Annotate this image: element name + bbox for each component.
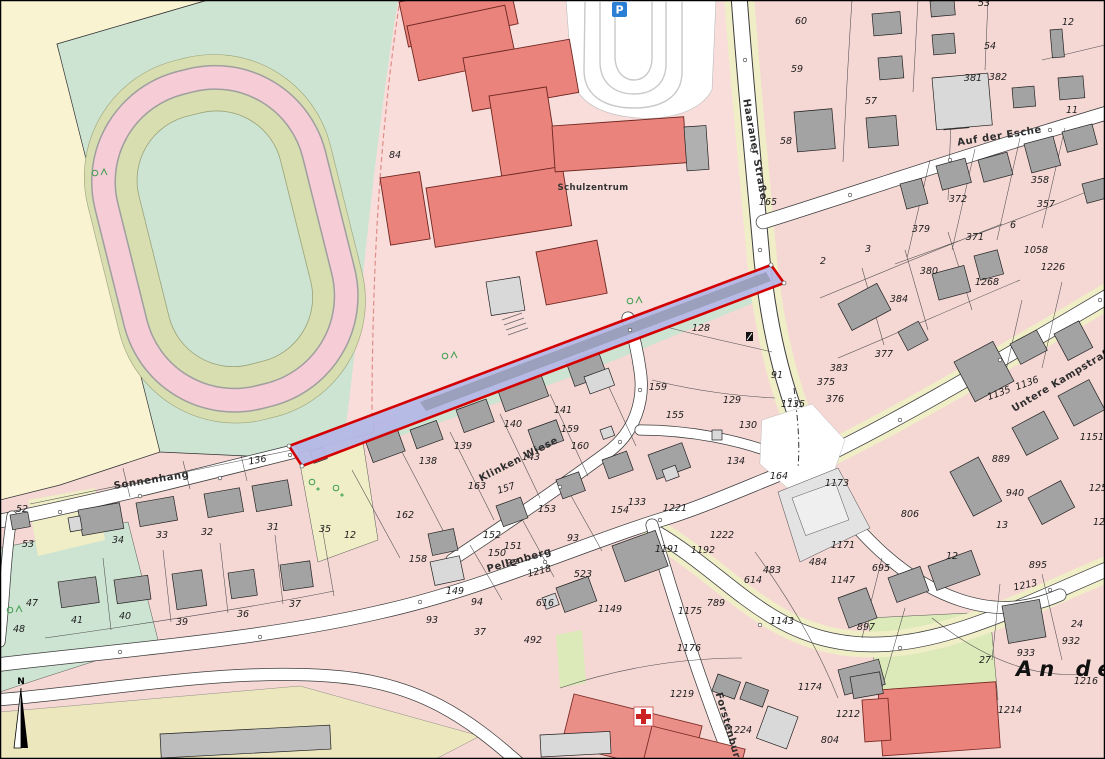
parcel-number-label: 889 <box>992 454 1010 465</box>
parcel-number-label: 384 <box>890 294 908 305</box>
parcel-number-label: 377 <box>875 349 893 360</box>
parcel-number-label: 381 <box>964 73 982 84</box>
parcel-number-label: 897 <box>857 622 875 633</box>
parcel-number-label: 1149 <box>598 604 622 615</box>
parcel-number-label: 151 <box>504 541 522 552</box>
area-name-label: Schulzentrum <box>558 183 629 193</box>
parcel-number-label: 1174 <box>798 682 822 693</box>
parcel-number-label: 382 <box>989 72 1007 83</box>
parcel-number-label: 58 <box>780 136 792 147</box>
parking-icon-letter: P <box>615 4 623 17</box>
parcel-number-label: 1226 <box>1041 262 1065 273</box>
parcel-number-label: 1171 <box>831 540 855 551</box>
parcel-number-label: 379 <box>912 224 930 235</box>
parcel-number-label: 158 <box>409 554 427 565</box>
parcel-number-label: 54 <box>984 41 996 52</box>
parcel-number-label: 616 <box>536 598 554 609</box>
parcel-number-label: 1212 <box>836 709 860 720</box>
north-arrow-letter: N <box>17 677 25 687</box>
parcel-number-label: 1147 <box>831 575 855 586</box>
parcel-number-label: 47 <box>26 598 38 609</box>
parcel-number-label: 12 <box>946 551 958 562</box>
parcel-number-label: 155 <box>666 410 684 421</box>
parcel-number-label: 39 <box>176 617 188 628</box>
parcel-number-label: 695 <box>872 563 890 574</box>
parcel-number-label: 12 <box>344 530 356 541</box>
parcel-number-label: 133 <box>628 497 646 508</box>
parcel-number-label: 153 <box>538 504 556 515</box>
parcel-number-label: 60 <box>795 16 807 27</box>
parcel-number-label: 1221 <box>663 503 687 514</box>
parcel-number-label: 33 <box>156 530 168 541</box>
parcel-number-label: 2 <box>820 256 826 267</box>
parcel-number-label: 358 <box>1031 175 1049 186</box>
parcel-number-label: 1173 <box>825 478 849 489</box>
parcel-number-label: 940 <box>1006 488 1024 499</box>
parcel-number-label: 372 <box>949 194 967 205</box>
parcel-number-label: 492 <box>524 635 542 646</box>
parcel-number-label: 52 <box>16 504 28 515</box>
parcel-number-label: 13 <box>996 520 1008 531</box>
parcel-number-label: 614 <box>744 575 762 586</box>
parcel-number-label: 1191 <box>655 544 679 555</box>
parcel-number-label: 1175 <box>678 606 702 617</box>
parking-area <box>566 0 716 118</box>
parcel-number-label: 134 <box>727 456 745 467</box>
parcel-number-label: 53 <box>22 539 34 550</box>
parcel-number-label: 932 <box>1062 636 1080 647</box>
parcel-number-label: 40 <box>119 611 131 622</box>
parcel-number-label: 1151 <box>1080 432 1104 443</box>
parcel-number-label: 159 <box>561 424 579 435</box>
parcel-number-label: 6 <box>1010 220 1016 231</box>
parcel-number-label: 162 <box>396 510 414 521</box>
parcel-number-label: 1135 <box>781 399 805 410</box>
parcel-number-label: 523 <box>574 569 592 580</box>
hospital-cross-icon <box>634 707 653 726</box>
parcel-number-label: 806 <box>901 509 919 520</box>
parcel-number-label: 91 <box>771 370 783 381</box>
utility-symbol-icon <box>746 332 753 341</box>
parcel-number-label: 139 <box>454 441 472 452</box>
parcel-number-label: 483 <box>763 565 781 576</box>
parcel-number-label: 128 <box>692 323 710 334</box>
parcel-number-label: 1268 <box>975 277 999 288</box>
parcel-number-label: 895 <box>1029 560 1047 571</box>
parcel-number-label: 154 <box>611 505 629 516</box>
parcel-number-label: 1214 <box>998 705 1022 716</box>
parcel-number-label: 57 <box>865 96 877 107</box>
parcel-number-label: 12 <box>1093 517 1105 528</box>
parcel-number-label: 160 <box>571 441 589 452</box>
parcel-number-label: 130 <box>739 420 757 431</box>
parcel-number-label: 149 <box>446 586 464 597</box>
parcel-number-label: 59 <box>791 64 803 75</box>
parcel-number-label: 37 <box>289 599 301 610</box>
parcel-number-label: 1222 <box>710 530 734 541</box>
parking-icon: P <box>612 2 627 17</box>
parcel-number-label: 24 <box>1071 619 1083 630</box>
parcel-number-label: 804 <box>821 735 839 746</box>
parcel-number-label: 129 <box>723 395 741 406</box>
parcel-number-label: 159 <box>649 382 667 393</box>
district-name-label: An der <box>1014 657 1105 681</box>
parcel-number-label: 31 <box>267 522 279 533</box>
parcel-number-label: 383 <box>830 363 848 374</box>
parcel-number-label: 375 <box>817 377 835 388</box>
parcel-number-label: 371 <box>966 232 984 243</box>
parcel-number-label: 138 <box>419 456 437 467</box>
parcel-number-label: 376 <box>826 394 844 405</box>
map-frame: P N 841651365253343332313512474841403936… <box>0 0 1105 759</box>
parcel-number-label: 37 <box>474 627 486 638</box>
parcel-number-label: 1058 <box>1024 245 1048 256</box>
parcel-number-label: 3 <box>865 244 871 255</box>
parcel-number-label: 94 <box>471 597 483 608</box>
parcel-number-label: 140 <box>504 419 522 430</box>
parcel-number-label: 35 <box>319 524 331 535</box>
parcel-number-label: 84 <box>389 150 401 161</box>
parcel-number-label: 93 <box>426 615 438 626</box>
parcel-number-label: 484 <box>809 557 827 568</box>
parcel-number-label: 41 <box>71 615 83 626</box>
parcel-number-label: 34 <box>112 535 124 546</box>
parcel-number-label: 164 <box>770 471 788 482</box>
parcel-number-label: 789 <box>707 598 725 609</box>
parcel-number-label: 1143 <box>770 616 794 627</box>
parcel-number-label: 1192 <box>691 545 715 556</box>
parcel-number-label: 1219 <box>670 689 694 700</box>
parcel-number-label: 93 <box>567 533 579 544</box>
parcel-number-label: 125 <box>1089 483 1105 494</box>
parcel-number-label: 36 <box>237 609 249 620</box>
parcel-number-label: 48 <box>13 624 25 635</box>
parcel-number-label: 27 <box>979 655 991 666</box>
parcel-number-label: 150 <box>488 548 506 559</box>
parcel-number-label: 1176 <box>677 643 701 654</box>
parcel-number-label: 152 <box>483 530 501 541</box>
parcel-number-label: 11 <box>1066 105 1078 116</box>
parcel-number-label: 357 <box>1037 199 1055 210</box>
parcel-number-label: 380 <box>920 266 938 277</box>
parcel-number-label: 53 <box>978 0 990 9</box>
map-canvas[interactable]: P N 841651365253343332313512474841403936… <box>0 0 1105 759</box>
parcel-number-label: 32 <box>201 527 213 538</box>
parcel-number-label: 141 <box>554 405 572 416</box>
green-wedge <box>556 630 586 688</box>
parcel-number-label: 12 <box>1062 17 1074 28</box>
